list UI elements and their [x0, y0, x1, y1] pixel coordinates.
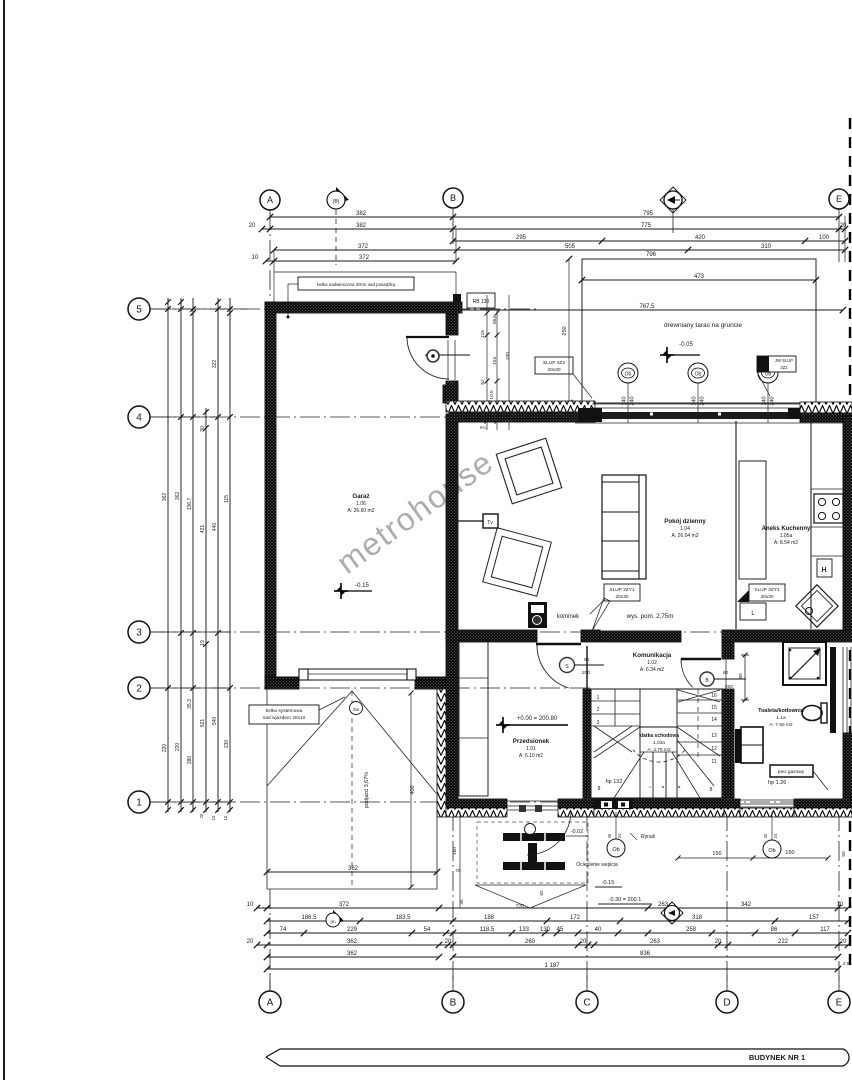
svg-text:100: 100 [819, 235, 830, 241]
svg-text:8,2: 8,2 [581, 415, 588, 421]
svg-text:BUDYNEK NR 1: BUDYNEK NR 1 [749, 1053, 805, 1062]
svg-text:505: 505 [565, 244, 576, 250]
svg-text:Ob: Ob [625, 372, 632, 378]
svg-text:362: 362 [162, 493, 168, 502]
svg-text:229: 229 [347, 927, 358, 933]
svg-text:150: 150 [712, 851, 721, 857]
svg-text:20: 20 [249, 223, 256, 229]
svg-text:362: 362 [175, 492, 181, 501]
svg-text:767.5: 767.5 [639, 304, 655, 310]
svg-text:52: 52 [480, 379, 486, 385]
svg-text:118.5: 118.5 [480, 927, 495, 933]
svg-text:A: A [267, 998, 274, 1009]
svg-text:Pokój dzienny: Pokój dzienny [664, 518, 706, 525]
svg-text:(B): (B) [333, 199, 340, 205]
svg-text:20: 20 [580, 939, 587, 945]
svg-text:24: 24 [617, 833, 622, 838]
svg-text:157: 157 [809, 915, 820, 921]
svg-text:Ob: Ob [768, 848, 775, 854]
svg-text:1: 1 [597, 695, 600, 701]
svg-text:295: 295 [516, 235, 527, 241]
svg-text:15: 15 [711, 705, 717, 711]
svg-text:3: 3 [597, 720, 600, 726]
svg-text:220: 220 [175, 743, 181, 752]
svg-text:8,2: 8,2 [724, 632, 731, 638]
svg-text:A: 8.54 m2: A: 8.54 m2 [774, 540, 798, 546]
svg-text:-0.30 = 200.1: -0.30 = 200.1 [609, 897, 642, 903]
svg-text:20x30: 20x30 [547, 367, 560, 373]
svg-text:D: D [723, 998, 730, 1009]
svg-text:~: ~ [649, 785, 652, 791]
svg-text:86: 86 [771, 927, 778, 933]
svg-text:Ob: Ob [612, 847, 619, 853]
svg-text:90: 90 [584, 657, 590, 663]
svg-text:E: E [836, 998, 843, 1009]
svg-text:188: 188 [484, 915, 495, 921]
svg-text:20: 20 [715, 939, 722, 945]
svg-text:24: 24 [773, 833, 778, 838]
svg-text:382: 382 [356, 211, 367, 217]
svg-text:19: 19 [200, 640, 206, 646]
svg-text:podjazd 3,67%: podjazd 3,67% [364, 772, 370, 808]
svg-text:150: 150 [785, 850, 794, 856]
svg-text:1.04: 1.04 [680, 526, 690, 532]
svg-text:16: 16 [711, 693, 717, 699]
svg-text:230: 230 [224, 740, 230, 749]
svg-text:Tv: Tv [487, 520, 493, 526]
svg-text:-0.15: -0.15 [602, 880, 615, 886]
svg-text:belka systemowa: belka systemowa [266, 708, 303, 714]
svg-text:11: 11 [711, 759, 716, 765]
svg-text:45: 45 [557, 927, 564, 933]
svg-text:Toaleta/kotłownia: Toaleta/kotłownia [758, 708, 805, 714]
svg-text:A: A [267, 195, 273, 205]
svg-text:372: 372 [339, 902, 350, 908]
svg-text:318: 318 [692, 915, 703, 921]
svg-text:Garaż: Garaż [352, 493, 369, 500]
svg-text:H: H [821, 567, 826, 574]
svg-text:540: 540 [212, 717, 218, 726]
svg-text:342: 342 [741, 902, 752, 908]
svg-text:Zw: Zw [353, 707, 360, 712]
svg-text:C: C [583, 998, 590, 1009]
svg-text:Rynali: Rynali [641, 834, 655, 840]
svg-text:1.1a: 1.1a [776, 715, 786, 721]
svg-text:40: 40 [763, 833, 768, 838]
svg-text:kominek: kominek [557, 614, 580, 620]
svg-text:8: 8 [710, 787, 713, 793]
svg-text:=: = [662, 785, 665, 791]
svg-text:372: 372 [358, 244, 369, 250]
svg-text:wys. pom. 2,75m: wys. pom. 2,75m [626, 613, 674, 620]
svg-text:362: 362 [347, 939, 358, 945]
svg-text:250: 250 [562, 326, 568, 335]
svg-text:258: 258 [686, 927, 697, 933]
svg-text:35.3: 35.3 [187, 699, 193, 709]
svg-text:222: 222 [778, 939, 789, 945]
svg-text:117: 117 [820, 927, 830, 933]
svg-text:50: 50 [841, 851, 847, 857]
svg-text:260: 260 [525, 939, 536, 945]
svg-text:B: B [450, 998, 457, 1009]
svg-text:220: 220 [162, 744, 168, 753]
svg-text:20: 20 [840, 939, 847, 945]
svg-text:1 187: 1 187 [544, 963, 560, 969]
svg-text:-0.05: -0.05 [679, 342, 693, 348]
svg-text:40: 40 [607, 833, 612, 838]
svg-text:A: 4.75 m2: A: 4.75 m2 [647, 747, 671, 753]
svg-text:20x30: 20x30 [760, 594, 773, 600]
svg-text:200: 200 [725, 684, 733, 690]
svg-text:14: 14 [711, 717, 717, 723]
svg-text:130: 130 [540, 927, 551, 933]
svg-text:piec gazowy: piec gazowy [778, 769, 805, 775]
svg-text:420: 420 [695, 235, 706, 241]
svg-text:10: 10 [223, 815, 228, 820]
svg-text:20: 20 [840, 223, 847, 229]
svg-text:13: 13 [711, 733, 717, 739]
svg-text:80: 80 [723, 670, 729, 676]
svg-text:Ob: Ob [695, 372, 702, 378]
svg-text:1: 1 [136, 798, 142, 809]
svg-text:796: 796 [646, 252, 657, 258]
svg-text:160: 160 [452, 847, 458, 855]
svg-text:20: 20 [247, 939, 254, 945]
svg-text:nad wjazdem 40x10: nad wjazdem 40x10 [263, 715, 306, 721]
svg-text:653: 653 [492, 316, 498, 324]
svg-text:10: 10 [247, 902, 254, 908]
svg-text:20: 20 [445, 939, 452, 945]
svg-text:200: 200 [505, 352, 511, 360]
svg-text:382: 382 [356, 223, 367, 229]
svg-text:hp 1.26: hp 1.26 [768, 780, 786, 786]
svg-text:103: 103 [492, 357, 498, 365]
svg-text:B: B [450, 193, 456, 203]
svg-text:A: 7.50 m2: A: 7.50 m2 [769, 722, 793, 728]
svg-text:A: 6.34 m2: A: 6.34 m2 [640, 667, 664, 673]
svg-text:SLUP 3Z2: SLUP 3Z2 [543, 360, 565, 366]
svg-text:1.05a: 1.05a [780, 533, 793, 539]
svg-text:521: 521 [200, 719, 206, 728]
svg-text:133: 133 [519, 927, 530, 933]
svg-text:1.03a: 1.03a [653, 740, 665, 746]
svg-text:372: 372 [359, 255, 370, 261]
svg-text:=: = [678, 785, 681, 791]
svg-text:A: 26.60 m2: A: 26.60 m2 [348, 508, 375, 514]
svg-text:74: 74 [280, 927, 287, 933]
svg-text:10: 10 [837, 902, 844, 908]
svg-text:2: 2 [136, 684, 142, 695]
svg-text:40: 40 [595, 927, 602, 933]
svg-text:473: 473 [694, 274, 705, 280]
svg-text:4: 4 [136, 413, 142, 424]
svg-text:186.5: 186.5 [301, 915, 317, 921]
svg-text:322: 322 [212, 360, 218, 369]
svg-text:8,2: 8,2 [806, 414, 813, 420]
svg-text:JW SLUP: JW SLUP [775, 358, 793, 363]
svg-text:20: 20 [199, 813, 204, 818]
svg-text:-0.02: -0.02 [571, 829, 584, 835]
svg-text:10.5: 10.5 [489, 390, 495, 400]
svg-text:Aneks Kuchenny: Aneks Kuchenny [762, 526, 811, 532]
svg-text:54: 54 [424, 927, 431, 933]
svg-text:5%: 5% [480, 425, 487, 430]
svg-text:Przedsionek: Przedsionek [513, 738, 550, 745]
svg-text:183.5: 183.5 [395, 915, 411, 921]
svg-text:836: 836 [640, 951, 651, 957]
svg-text:E: E [836, 194, 842, 204]
svg-text:362: 362 [347, 951, 358, 957]
svg-text:1.02: 1.02 [647, 660, 657, 666]
svg-text:5: 5 [136, 305, 142, 316]
svg-text:A: 26.04 m2: A: 26.04 m2 [672, 533, 699, 539]
svg-text:SLUP 3ZY1: SLUP 3ZY1 [609, 587, 635, 593]
svg-text:3Z2: 3Z2 [780, 365, 788, 370]
svg-text:A: 6.10 m2: A: 6.10 m2 [519, 753, 543, 759]
svg-text:310: 310 [761, 244, 772, 250]
svg-text:1.06: 1.06 [356, 501, 366, 507]
svg-text:115: 115 [224, 495, 230, 503]
svg-text:421: 421 [200, 525, 206, 534]
svg-text:Komunikacja: Komunikacja [633, 652, 672, 659]
svg-text:775: 775 [641, 223, 652, 229]
svg-text:136.7: 136.7 [187, 498, 193, 511]
svg-text:362: 362 [348, 866, 359, 872]
svg-text:10: 10 [211, 815, 216, 820]
svg-text:172: 172 [570, 915, 581, 921]
svg-text:3: 3 [136, 628, 142, 639]
svg-text:263: 263 [650, 939, 661, 945]
svg-text:270: 270 [516, 904, 525, 910]
svg-text:klatka schodowa: klatka schodowa [639, 733, 679, 739]
svg-text:2.6: 2.6 [843, 961, 850, 966]
svg-text:drewniany taras na gruncie: drewniany taras na gruncie [664, 322, 742, 329]
svg-text:92: 92 [539, 890, 545, 896]
svg-text:-0.15: -0.15 [355, 583, 369, 589]
svg-text:440: 440 [212, 523, 218, 532]
svg-text:Ocieplenie wejścia: Ocieplenie wejścia [576, 862, 618, 868]
svg-text:10: 10 [252, 255, 259, 261]
svg-text:+0.00 = 200.80: +0.00 = 200.80 [517, 716, 558, 722]
svg-text:8: 8 [598, 786, 601, 792]
svg-text:hp 132: hp 132 [606, 779, 623, 785]
svg-text:400: 400 [410, 785, 416, 794]
svg-text:795: 795 [643, 211, 654, 217]
svg-text:2: 2 [597, 707, 600, 713]
svg-text:30: 30 [200, 426, 206, 432]
svg-text:200: 200 [582, 670, 590, 676]
svg-text:280: 280 [187, 756, 193, 765]
svg-text:116: 116 [480, 330, 486, 338]
svg-text:1.01: 1.01 [526, 746, 536, 752]
svg-text:90: 90 [738, 673, 744, 679]
svg-text:(B): (B) [330, 919, 336, 924]
svg-text:SLUP 3ZY1: SLUP 3ZY1 [754, 587, 780, 593]
svg-text:belka nadwieszona 30cm nad pos: belka nadwieszona 30cm nad posadzką [317, 282, 395, 287]
svg-text:20x30: 20x30 [615, 594, 628, 600]
